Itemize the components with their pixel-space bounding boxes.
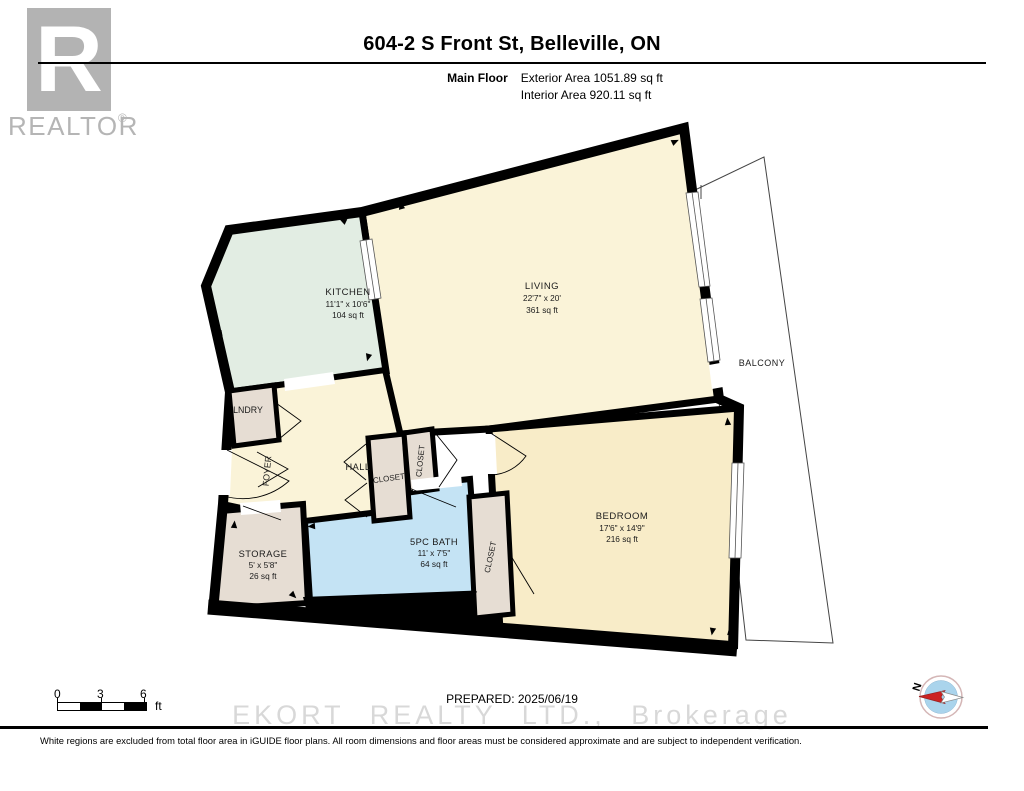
- header-rule: [38, 62, 986, 64]
- kitchen-label: KITCHEN: [325, 287, 370, 298]
- interior-area: Interior Area 920.11 sq ft: [521, 87, 663, 104]
- exterior-area: Exterior Area 1051.89 sq ft: [521, 70, 663, 87]
- hall-label: HALL: [346, 462, 371, 472]
- bath-area: 64 sq ft: [420, 559, 448, 569]
- floor-areas: Exterior Area 1051.89 sq ft Interior Are…: [521, 70, 663, 104]
- kitchen-dims: 11'1" x 10'6": [326, 299, 371, 309]
- prepared-date: PREPARED: 2025/06/19: [0, 692, 1024, 706]
- kitchen-area: 104 sq ft: [332, 310, 365, 320]
- compass: N: [908, 668, 978, 731]
- balcony-label: BALCONY: [739, 358, 786, 368]
- laundry-label: LNDRY: [233, 405, 263, 415]
- floor-stats: Main Floor Exterior Area 1051.89 sq ft I…: [43, 70, 1024, 104]
- north-label: N: [911, 681, 925, 692]
- compass-icon: N: [908, 668, 978, 726]
- bath-dims: 11' x 7'5": [418, 548, 451, 558]
- entry-door-gap: [218, 450, 232, 495]
- storage-dims: 5' x 5'8": [249, 560, 278, 570]
- bedroom-dims: 17'6" x 14'9": [599, 523, 645, 533]
- footer-rule: [0, 726, 988, 729]
- floor-plan-page: KITCHEN 11'1" x 10'6" 104 sq ft LIVING 2…: [0, 0, 1024, 791]
- bedroom-label: BEDROOM: [596, 511, 649, 522]
- bedroom-area: 216 sq ft: [606, 534, 639, 544]
- laundry-shape: [229, 385, 279, 446]
- disclaimer-text: White regions are excluded from total fl…: [40, 735, 802, 746]
- living-label: LIVING: [525, 281, 559, 292]
- floor-label: Main Floor: [447, 70, 508, 104]
- storage-label: STORAGE: [239, 549, 288, 559]
- living-dims: 22'7" x 20': [523, 293, 561, 303]
- page-title: 604-2 S Front St, Belleville, ON: [0, 33, 1024, 56]
- registered-mark: ®: [118, 111, 127, 125]
- bath-label: 5PC BATH: [410, 537, 458, 547]
- living-area: 361 sq ft: [526, 305, 559, 315]
- storage-area: 26 sq ft: [249, 571, 277, 581]
- bedroom-door-gap: [483, 434, 497, 474]
